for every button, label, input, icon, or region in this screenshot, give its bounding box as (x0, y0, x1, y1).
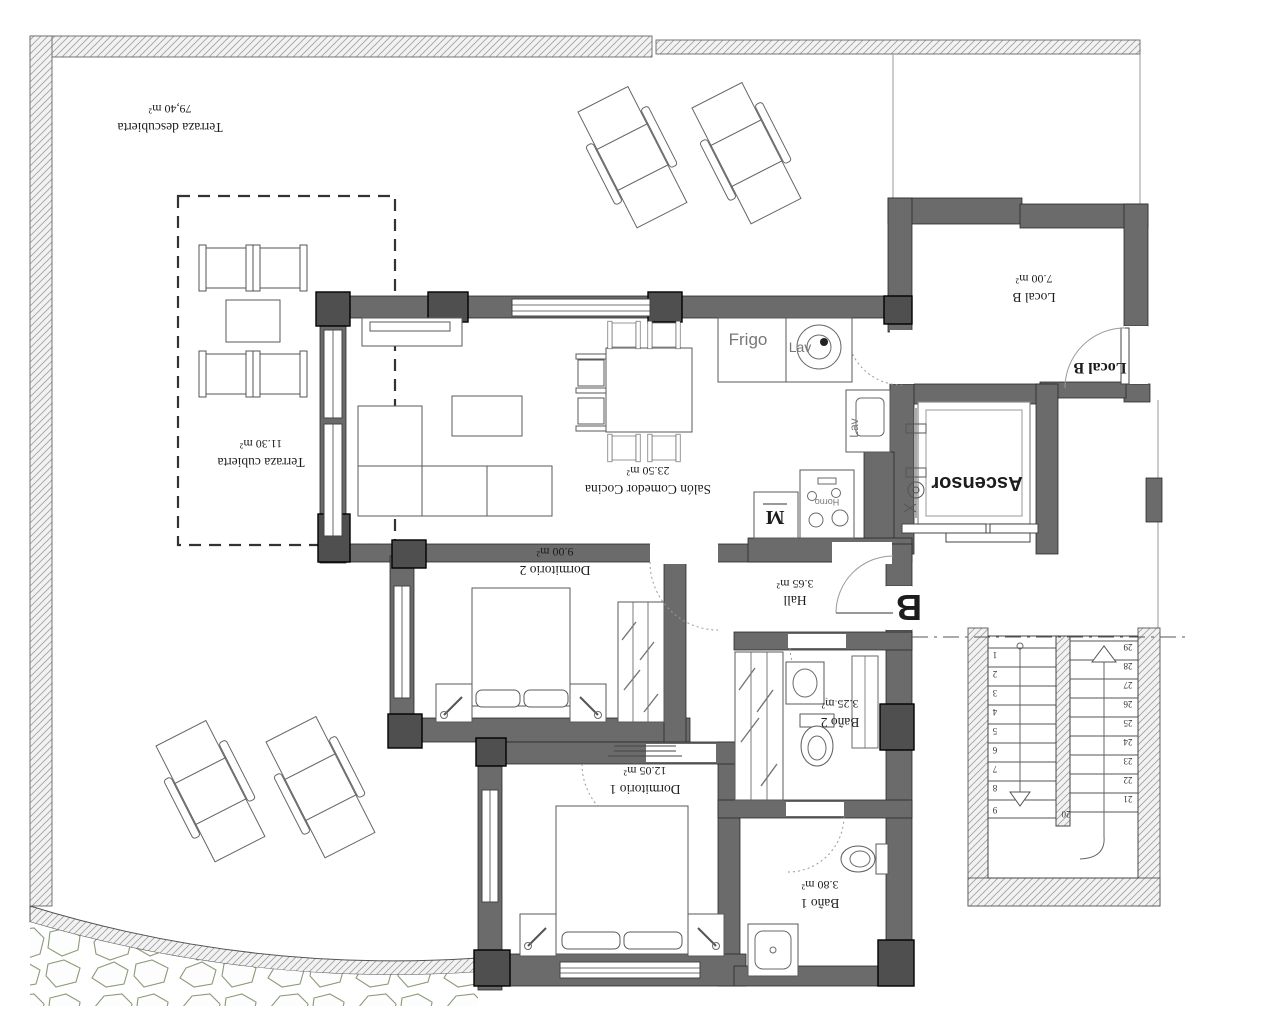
stair-num: 29 (1123, 642, 1133, 652)
stairs-down-arrow (1010, 792, 1030, 806)
stair-num: 22 (1124, 775, 1133, 785)
stair-num: 3 (992, 688, 997, 698)
terrace-furniture (199, 245, 307, 397)
local-b-area: 7.00 m² (1015, 272, 1052, 286)
stair-num: 27 (1123, 680, 1133, 690)
bano1-label: Baño 1 (801, 896, 840, 911)
terraza-descubierta-label: Terraza descubierta (117, 120, 222, 135)
bano1-area: 3.80 m² (801, 878, 838, 892)
elevator (902, 402, 1038, 542)
stair-num: 26 (1123, 699, 1133, 709)
stair-num: 20 (1061, 809, 1071, 819)
lav-sink-label: Lav (847, 418, 861, 437)
frigo-label: Frigo (729, 330, 768, 349)
stairs-up-arrow (1092, 646, 1116, 662)
salon-label: Salón Comedor Cocina (585, 482, 711, 497)
terraza-descubierta-area: 79,40 m² (148, 102, 191, 116)
terraza-cubierta-label: Terraza cubierta (217, 455, 304, 470)
stair-num: 25 (1123, 718, 1133, 728)
bedroom2-furniture (436, 588, 664, 722)
stair-num: 21 (1124, 794, 1133, 804)
walls (316, 198, 1162, 990)
stair-num: 23 (1123, 756, 1133, 766)
dormitorio2-area: 9.00 m² (536, 545, 573, 559)
stair-num: 7 (992, 764, 997, 774)
stair-num: 4 (992, 707, 997, 717)
local-b-door-arc (1065, 328, 1125, 388)
stair-num: 6 (992, 745, 997, 755)
stair-num: 2 (993, 669, 998, 679)
stair-num: 28 (1123, 661, 1133, 671)
ascensor-label: Ascensor (931, 472, 1022, 494)
bath1-door-arc (788, 816, 844, 872)
floor-plan: 79,40 m² Terraza descubierta 11.30 m² Te… (0, 0, 1280, 1024)
bedroom1-furniture (520, 806, 724, 956)
local-b-label: Local B (1012, 290, 1055, 305)
terraza-cubierta-area: 11.30 m² (239, 437, 282, 451)
bano2-label: Baño 2 (821, 715, 860, 730)
dormitorio1-label: Dormitorio 1 (610, 782, 681, 797)
salon-area: 23.50 m² (626, 464, 669, 478)
hall-wardrobe (735, 652, 783, 800)
dormitorio1-area: 12.05 m² (623, 764, 666, 778)
stone-border (30, 906, 478, 1006)
stair-num: 1 (993, 650, 998, 660)
stair-num: 9 (992, 805, 997, 815)
stair-num: 8 (992, 783, 997, 793)
local-b-door-label: Local B (1073, 359, 1126, 376)
unit-b-label: B (896, 587, 922, 628)
lav-washer-label: Lav (789, 339, 812, 355)
stair-num: 5 (992, 726, 997, 736)
dormitorio2-label: Dormitorio 2 (520, 563, 591, 578)
stairs (912, 628, 1190, 906)
bano2-area: 3.25 m² (821, 697, 858, 711)
hall-area: 3.65 m² (776, 577, 813, 591)
microwave-label: M (765, 506, 784, 528)
entrance-door-arc (836, 556, 893, 613)
horno-label: Horno (815, 497, 840, 507)
stair-num: 24 (1123, 737, 1133, 747)
hall-label: Hall (783, 593, 806, 608)
